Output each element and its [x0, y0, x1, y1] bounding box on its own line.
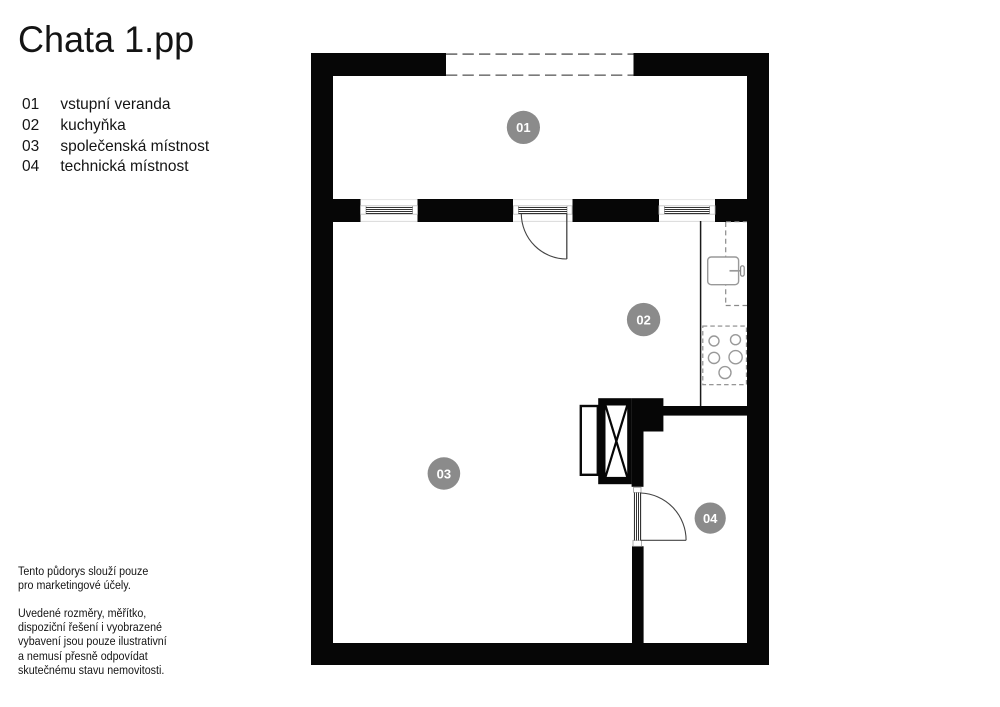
svg-text:02: 02 [636, 312, 650, 327]
svg-text:03: 03 [437, 466, 451, 481]
svg-text:01: 01 [516, 120, 530, 135]
svg-text:04: 04 [703, 511, 718, 526]
